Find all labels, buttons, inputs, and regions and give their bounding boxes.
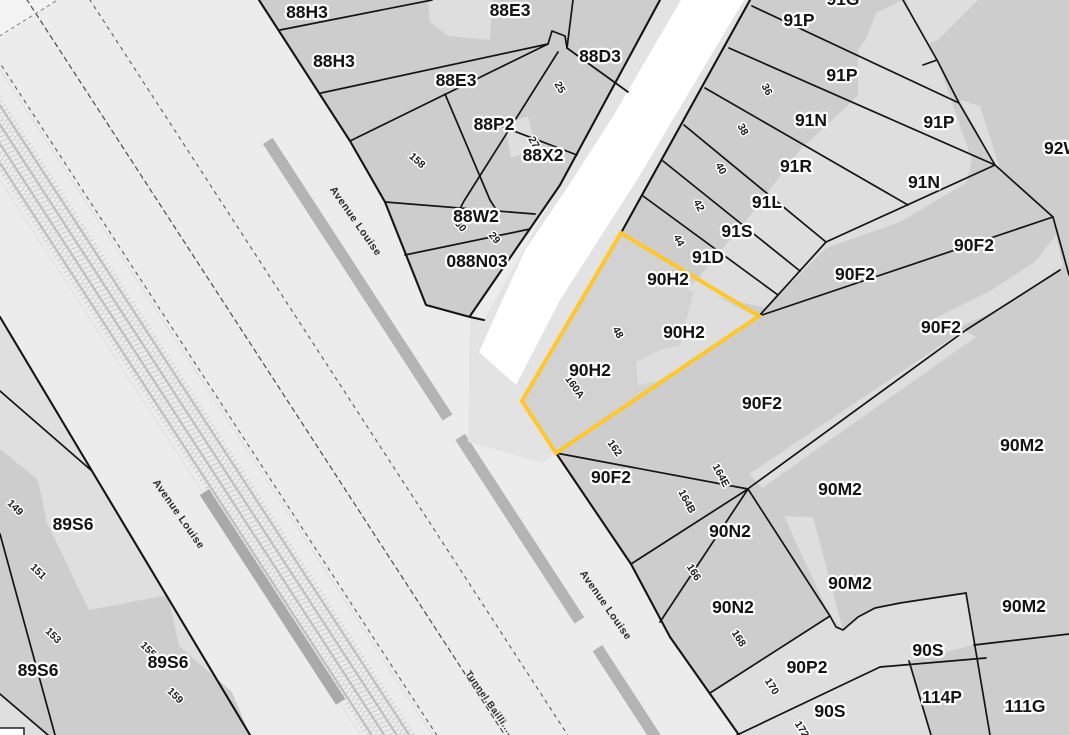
- svg-text:88X2: 88X2: [523, 145, 564, 165]
- svg-text:88P2: 88P2: [474, 114, 515, 134]
- svg-text:91P: 91P: [923, 112, 954, 132]
- svg-text:90M2: 90M2: [818, 479, 862, 499]
- svg-text:90M2: 90M2: [1002, 596, 1046, 616]
- svg-text:114P: 114P: [922, 687, 962, 707]
- svg-text:91R: 91R: [780, 156, 812, 176]
- svg-text:88D3: 88D3: [579, 46, 621, 66]
- svg-text:91L: 91L: [752, 192, 782, 212]
- svg-text:91P: 91P: [826, 65, 857, 85]
- svg-text:90P2: 90P2: [787, 657, 828, 677]
- svg-text:90S: 90S: [912, 640, 943, 660]
- svg-text:91D: 91D: [692, 247, 724, 267]
- svg-text:89S6: 89S6: [148, 652, 189, 672]
- svg-text:90N2: 90N2: [709, 521, 751, 541]
- svg-text:89S6: 89S6: [53, 514, 94, 534]
- svg-text:88H3: 88H3: [313, 51, 355, 71]
- svg-text:90F2: 90F2: [835, 264, 875, 284]
- svg-text:90H2: 90H2: [663, 322, 705, 342]
- svg-text:088N03: 088N03: [446, 251, 508, 271]
- svg-text:91G: 91G: [826, 0, 859, 9]
- svg-text:90S: 90S: [814, 701, 845, 721]
- svg-text:90F2: 90F2: [921, 317, 961, 337]
- svg-text:90F2: 90F2: [954, 235, 994, 255]
- svg-text:90M2: 90M2: [1000, 435, 1044, 455]
- svg-text:89S6: 89S6: [18, 660, 59, 680]
- svg-text:90H2: 90H2: [647, 269, 689, 289]
- svg-text:111G: 111G: [1005, 696, 1046, 716]
- svg-text:88E3: 88E3: [490, 0, 531, 20]
- svg-text:91S: 91S: [721, 221, 752, 241]
- svg-text:90N2: 90N2: [712, 597, 754, 617]
- svg-text:88W2: 88W2: [453, 206, 499, 226]
- svg-text:88H3: 88H3: [286, 2, 328, 22]
- svg-text:88E3: 88E3: [436, 70, 477, 90]
- svg-text:92W: 92W: [1044, 138, 1069, 158]
- svg-text:91P: 91P: [783, 10, 814, 30]
- svg-text:91N: 91N: [908, 172, 940, 192]
- svg-text:90H2: 90H2: [569, 360, 611, 380]
- svg-text:91N: 91N: [795, 110, 827, 130]
- svg-text:90F2: 90F2: [591, 467, 631, 487]
- svg-text:90M2: 90M2: [828, 573, 872, 593]
- svg-text:90F2: 90F2: [742, 393, 782, 413]
